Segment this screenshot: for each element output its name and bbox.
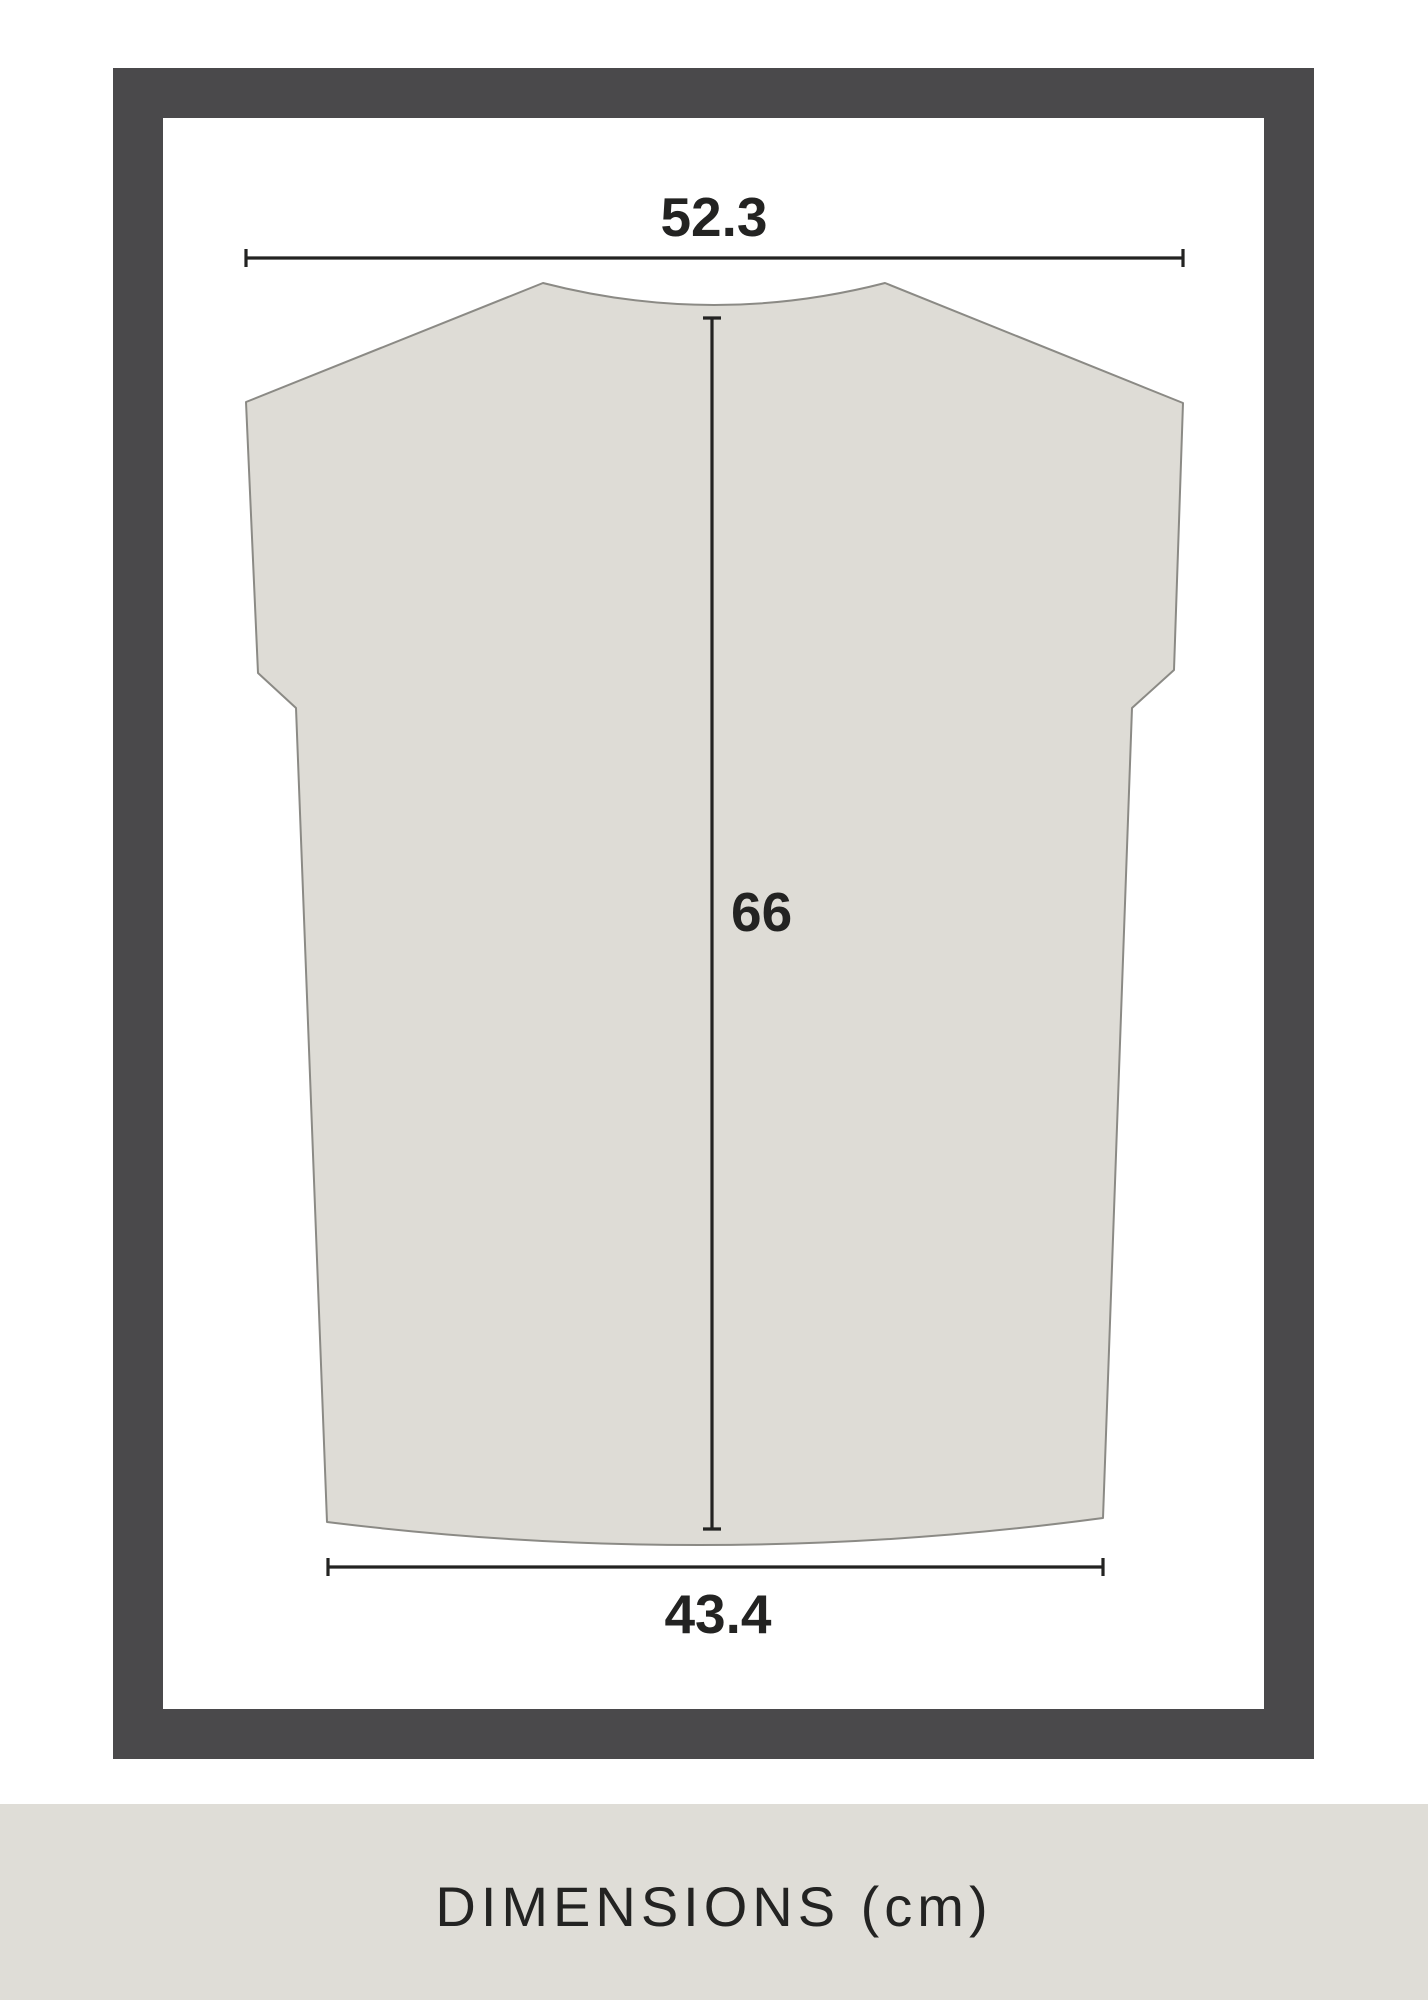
dimensions-diagram: 52.3 66 43.4 [0,0,1428,2000]
tshirt-shape [246,283,1183,1545]
bottom-width-label: 43.4 [664,1583,771,1645]
top-width-label: 52.3 [660,186,767,248]
length-label: 66 [731,881,792,943]
footer-bar: DIMENSIONS (cm) [0,1804,1428,2000]
bottom-width-dimension: 43.4 [328,1558,1103,1645]
footer-title: DIMENSIONS (cm) [435,1866,992,1939]
page: 52.3 66 43.4 DIMENSIONS (cm) [0,0,1428,2000]
top-width-dimension: 52.3 [246,186,1183,267]
